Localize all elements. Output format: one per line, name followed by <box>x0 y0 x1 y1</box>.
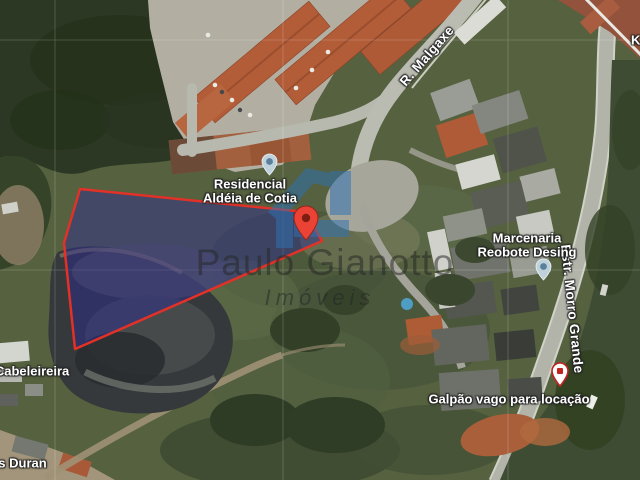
business-pin-icon-galpao[interactable] <box>551 362 569 392</box>
poi-label-marcenaria[interactable]: Marcenaria Reobote Desing <box>478 232 577 259</box>
poi-label-duran[interactable]: res Duran <box>0 456 47 470</box>
poi-label-galpao[interactable]: Galpão vago para locação <box>428 392 589 406</box>
poi-marker-icon-marcenaria[interactable] <box>535 258 552 286</box>
poi-label-residencial[interactable]: Residencial Aldéia de Cotia <box>203 178 297 205</box>
red-map-pin-icon[interactable] <box>293 205 319 246</box>
satellite-map-canvas[interactable]: Paulo Gianotto Imóveis Residencial Aldéi… <box>0 0 640 480</box>
poi-label-cabeleireira[interactable]: a Cabeleireira <box>0 364 69 378</box>
poi-label-clipped-right[interactable]: K <box>631 33 640 47</box>
